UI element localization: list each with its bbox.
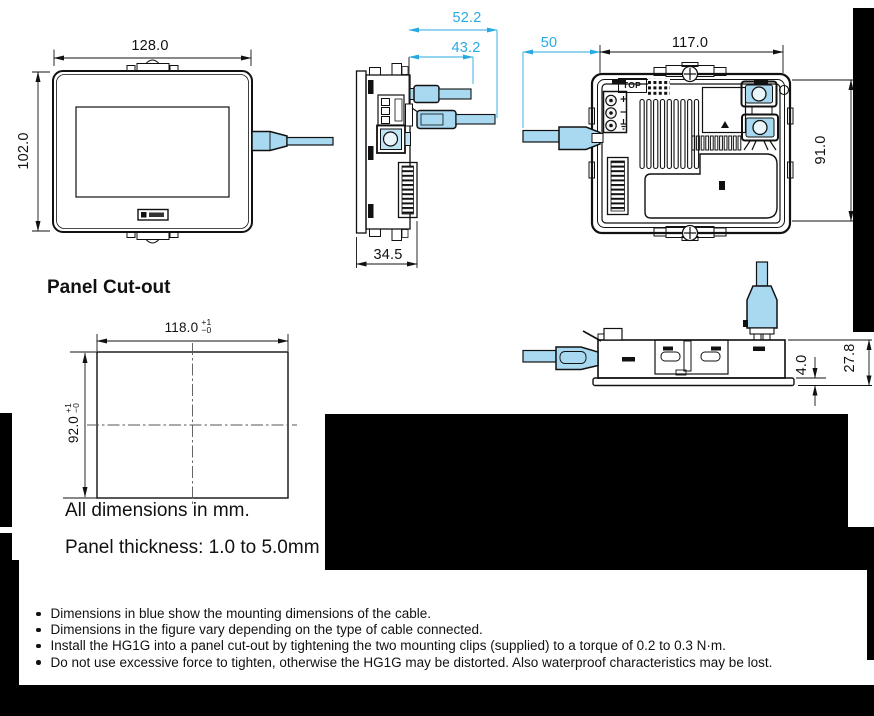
front-view-drawing: [32, 50, 333, 244]
scan-black-region-left-lower: [0, 560, 19, 686]
scan-black-region-right-top: [853, 8, 874, 332]
cutout-height-tolerance: +1−0: [64, 403, 80, 413]
side-cable-top: [410, 86, 471, 103]
scan-black-region-left-mid: [0, 533, 12, 560]
side-view-drawing: [357, 30, 498, 268]
front-width-dim-label: 128.0: [131, 38, 168, 54]
rear-top-orientation-tag: TOP: [618, 78, 647, 93]
bullet-dot: [36, 660, 41, 665]
footnotes: Dimensions in blue show the mounting dim…: [36, 606, 772, 671]
rear-cable-graphic: [523, 127, 603, 150]
cutout-height-dim-label: 92.0+1−0: [65, 403, 81, 443]
footnote-bullet-4: Do not use excessive force to tighten, o…: [36, 655, 772, 671]
datasheet-dimensions-page: 128.0 102.0 52.2 43.2 34.5 50 117.0 91.0…: [0, 0, 874, 716]
footnote-bullet-1: Dimensions in blue show the mounting dim…: [36, 606, 772, 622]
scan-black-region-middle-lower: [325, 527, 867, 570]
bottom-depth-dim-label: 27.8: [842, 343, 858, 372]
rear-usb-connectors: [742, 82, 789, 151]
front-cable-graphic: [252, 132, 333, 151]
rear-view-drawing: [523, 45, 857, 241]
rear-height-dim-label: 91.0: [813, 135, 829, 164]
rear-cable-dim-label: 50: [541, 35, 558, 51]
side-cable-bottom: [417, 111, 495, 129]
bullet-dot: [36, 644, 41, 649]
rear-power-terminal: [604, 92, 627, 133]
footnote-bullet-3: Install the HG1G into a panel cut-out by…: [36, 638, 772, 654]
footnote-bullet-2: Dimensions in the figure vary depending …: [36, 622, 772, 638]
cutout-width-dim-label: 118.0+1−0: [165, 319, 212, 335]
side-depth-dim-label: 34.5: [373, 247, 402, 263]
panel-thickness-note: Panel thickness: 1.0 to 5.0mm: [65, 537, 320, 559]
idec-logo: [138, 210, 168, 221]
rear-width-dim-label: 117.0: [672, 35, 708, 51]
side-cable-outer-dim-label: 52.2: [452, 10, 481, 26]
panel-cutout-drawing: [63, 334, 297, 507]
cutout-width-tolerance: +1−0: [201, 318, 211, 334]
bottom-view-drawing: [523, 262, 872, 406]
side-cable-inner-dim-label: 43.2: [451, 40, 480, 56]
front-height-dim-label: 102.0: [16, 132, 32, 169]
cutout-height-value: 92.0: [66, 416, 81, 443]
bullet-dot: [36, 612, 41, 617]
bullet-dot: [36, 628, 41, 633]
cutout-width-value: 118.0: [165, 320, 199, 335]
panel-cutout-heading: Panel Cut-out: [47, 277, 171, 299]
scan-black-region-right-strip: [867, 527, 874, 660]
bottom-lip-dim-label: 4.0: [794, 355, 810, 376]
units-note: All dimensions in mm.: [65, 500, 250, 522]
scan-black-region-left-upper: [0, 413, 12, 527]
scan-black-region-middle: [325, 414, 848, 527]
bottom-cable-top: [743, 262, 777, 340]
scan-black-region-bottom-band: [0, 685, 874, 716]
side-power-connector: [377, 126, 411, 154]
bottom-cable-left: [523, 347, 598, 370]
